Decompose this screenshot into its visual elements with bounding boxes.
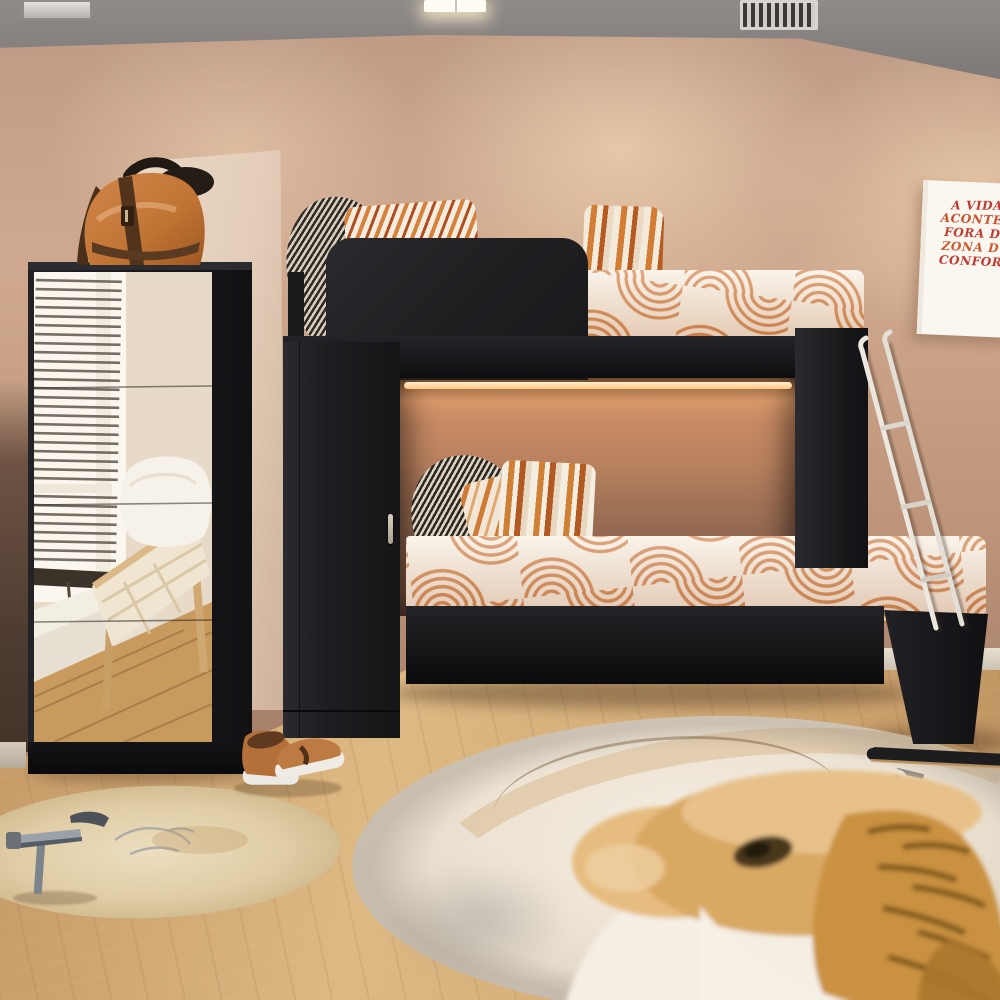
ceiling-light-icon [22, 0, 92, 20]
baseboard-left [0, 742, 26, 768]
wardrobe-top-edge [28, 262, 252, 270]
mirror-reflection [34, 272, 212, 742]
wardrobe-base [28, 742, 252, 774]
ceiling-light-icon [424, 0, 486, 12]
poster-line: confor [939, 253, 1000, 270]
rug-arc-line [488, 725, 844, 884]
top-bunk-headboard-edge [288, 272, 304, 346]
ceiling-light-icon [740, 0, 818, 30]
bed-wardrobe-handle [388, 514, 393, 544]
left-wall-shadow [0, 380, 30, 752]
led-strip [404, 382, 792, 389]
bottom-bunk-base-rail [406, 606, 884, 684]
rug-fringe-patch [559, 956, 766, 1000]
poster-line: a vida [951, 198, 1000, 213]
wall-poster: a vida aconte fora d zona d confor [917, 180, 1000, 338]
bed-wardrobe-column [283, 342, 400, 738]
bed-right-column [795, 328, 868, 568]
wardrobe-mirror [34, 272, 212, 742]
bedroom-photo: a vida aconte fora d zona d confor [0, 0, 1000, 1000]
rug-fringe-patch [359, 848, 596, 992]
